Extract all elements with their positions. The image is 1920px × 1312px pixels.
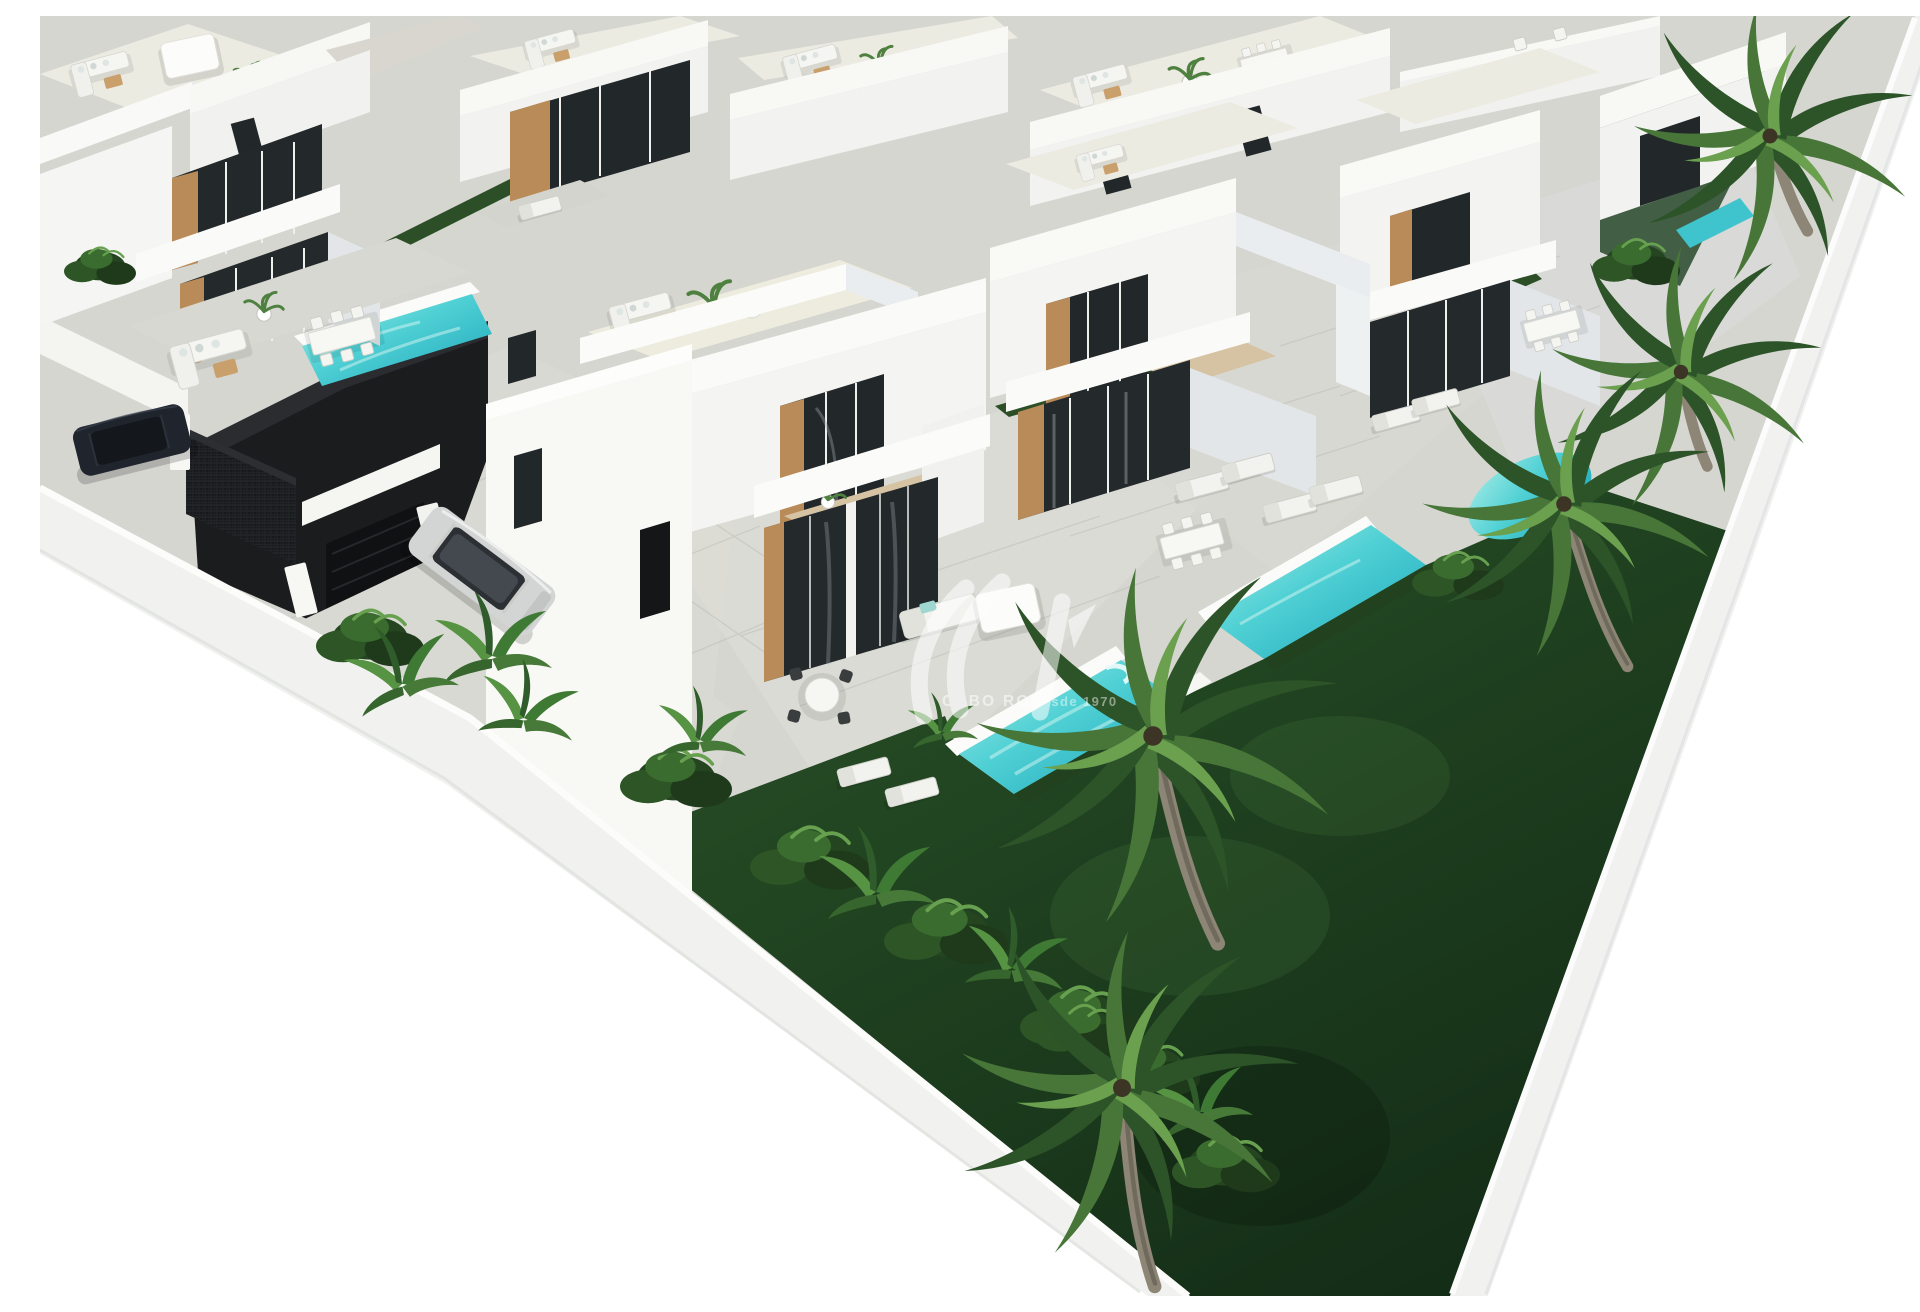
villa-development-render: Aerial 3D architectural render of a mode… — [40, 16, 1920, 1296]
watermark-tagline: Desde 1970 — [1032, 694, 1118, 709]
render-canvas: Aerial 3D architectural render of a mode… — [40, 16, 1920, 1296]
entry-door — [640, 521, 670, 619]
